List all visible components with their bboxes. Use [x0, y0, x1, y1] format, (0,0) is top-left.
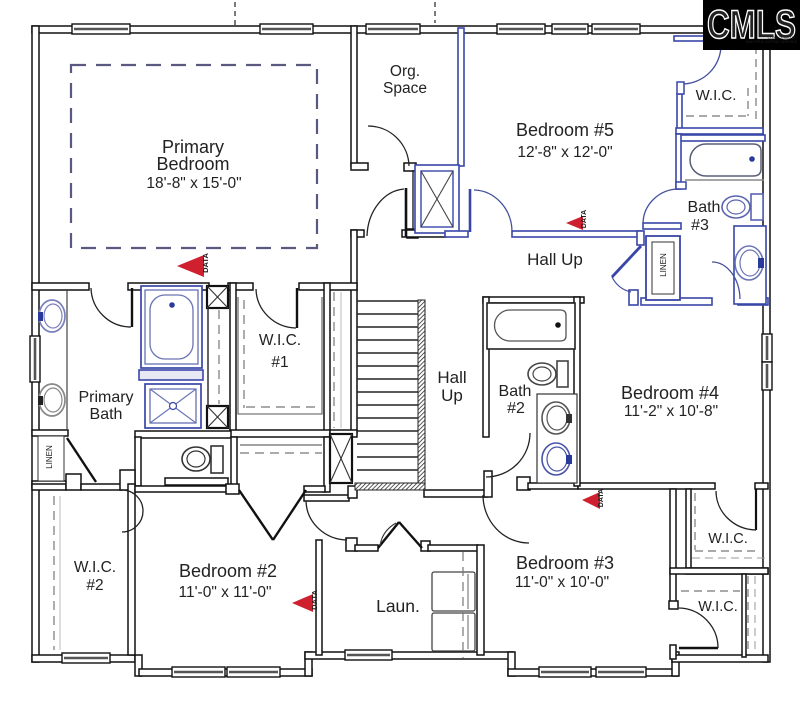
svg-text:Primary: Primary	[78, 389, 133, 406]
svg-text:12'-8" x 12'-0": 12'-8" x 12'-0"	[517, 144, 612, 161]
svg-text:Bedroom #5: Bedroom #5	[516, 120, 614, 140]
svg-text:11'-0" x 10'-0": 11'-0" x 10'-0"	[515, 574, 609, 591]
svg-text:11'-2" x 10'-8": 11'-2" x 10'-8"	[624, 403, 718, 420]
svg-text:Space: Space	[383, 80, 427, 97]
svg-text:W.I.C.: W.I.C.	[696, 87, 737, 104]
svg-text:W.I.C.: W.I.C.	[259, 332, 301, 349]
svg-text:MULTIPLE LISTING SERVICE: MULTIPLE LISTING SERVICE	[746, 40, 798, 44]
svg-text:W.I.C.: W.I.C.	[698, 599, 737, 615]
svg-text:#1: #1	[271, 354, 288, 371]
svg-text:DATA: DATA	[581, 210, 588, 228]
svg-text:LINEN: LINEN	[659, 253, 668, 277]
svg-text:#2: #2	[86, 577, 103, 594]
svg-text:Bath: Bath	[499, 383, 532, 400]
svg-text:18'-8" x 15'-0": 18'-8" x 15'-0"	[146, 175, 241, 192]
svg-text:Org.: Org.	[390, 63, 420, 80]
svg-text:W.I.C.: W.I.C.	[74, 559, 116, 576]
svg-text:Bedroom #2: Bedroom #2	[179, 561, 277, 581]
svg-text:Laun.: Laun.	[376, 596, 420, 616]
svg-text:#2: #2	[507, 400, 525, 417]
svg-text:Bath: Bath	[90, 406, 123, 423]
svg-text:Hall: Hall	[437, 368, 466, 387]
svg-text:DATA: DATA	[310, 590, 319, 610]
svg-text:11'-0" x 11'-0": 11'-0" x 11'-0"	[178, 584, 271, 601]
svg-text:Bedroom: Bedroom	[156, 154, 229, 174]
svg-text:W.I.C.: W.I.C.	[708, 531, 747, 547]
svg-text:DATA: DATA	[598, 489, 605, 507]
svg-text:Hall Up: Hall Up	[527, 250, 583, 269]
svg-text:#3: #3	[691, 217, 709, 234]
svg-text:Bedroom #3: Bedroom #3	[516, 553, 614, 573]
svg-text:Bath: Bath	[688, 199, 721, 216]
svg-text:Up: Up	[441, 386, 463, 405]
svg-text:LINEN: LINEN	[45, 445, 54, 469]
svg-text:CONSOLIDATED: CONSOLIDATED	[768, 36, 798, 40]
svg-text:DATA: DATA	[201, 253, 210, 273]
svg-text:Bedroom #4: Bedroom #4	[621, 383, 719, 403]
